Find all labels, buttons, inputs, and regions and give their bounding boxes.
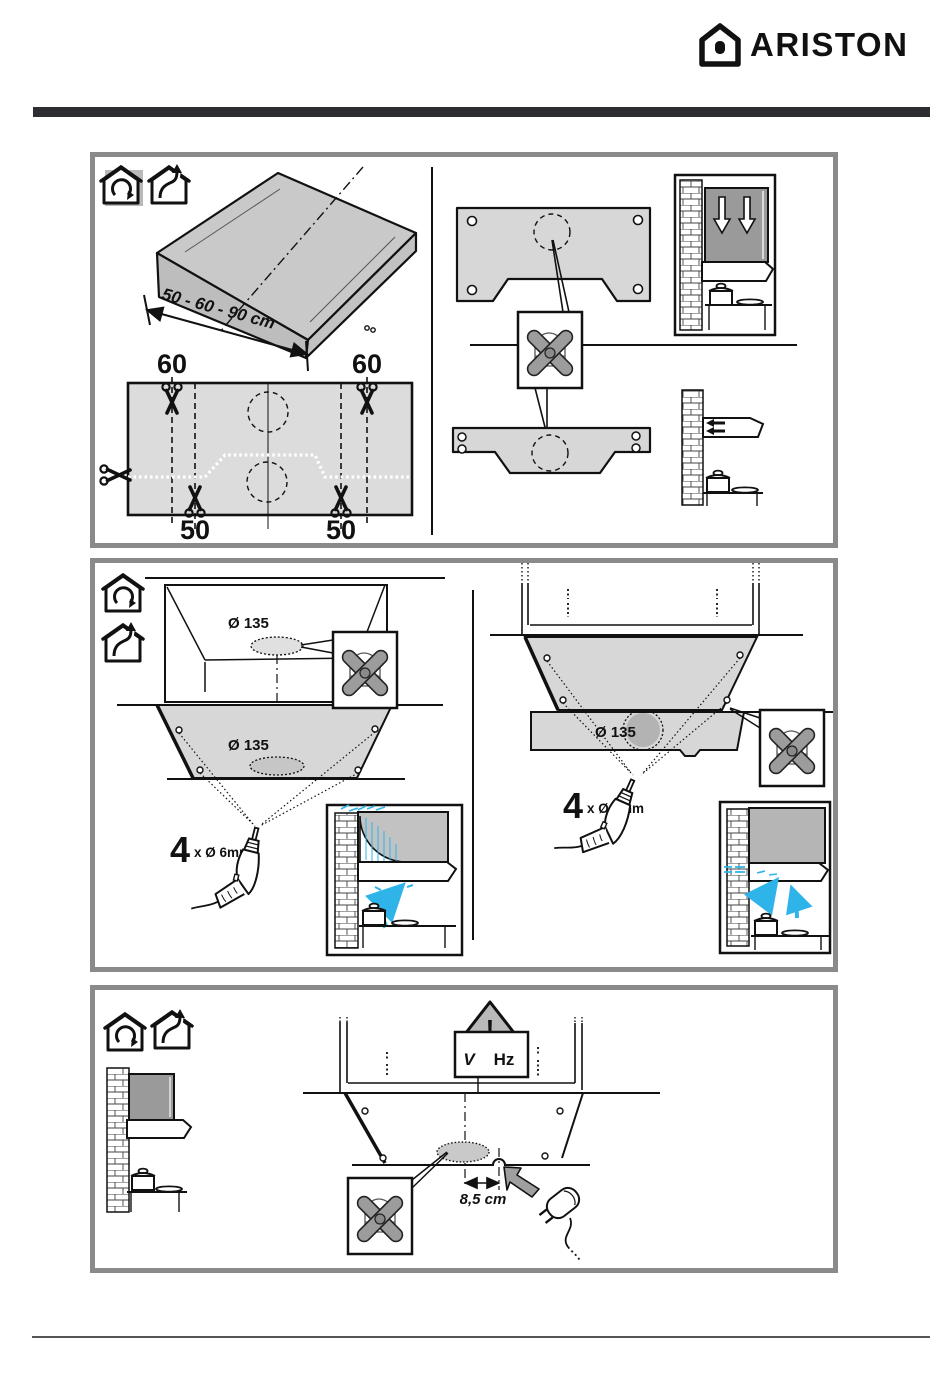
recirculation-mode-icon [101,167,143,206]
brick-wall [680,180,702,330]
brand-name: ARISTON [750,26,908,64]
pot-icon [706,471,730,492]
hole-diameter-label: Ø 135 [228,737,269,754]
hole-diameter-label: Ø 135 [595,724,636,741]
drill-count: 4 [170,829,190,870]
pot-icon [131,1169,155,1190]
plate-icon [732,487,758,492]
recirculation-mode-icon [105,1014,145,1050]
scene-duct-through-cabinet [327,805,462,955]
hood [358,862,456,881]
plate-icon [156,1186,182,1191]
drill-count: 4 [563,785,583,826]
drill-icon [191,817,268,922]
cabinet [705,188,768,262]
ariston-logo: ARISTON [698,22,916,68]
cable-knockout [437,1142,489,1162]
cut-60-left-label: 60 [157,349,187,379]
panel-electrical: ! V Hz 8,5 cm [90,985,838,1273]
ducted-mode-icon [103,622,143,661]
cable-distance-label: 8,5 cm [460,1191,507,1208]
hole-diameter-label: Ø 135 [228,615,269,632]
cut-50-left-label: 50 [180,515,210,543]
hood [702,262,773,281]
header-rule [33,107,930,117]
do-not-drill-icon [333,632,397,708]
cutting-template: 60 60 50 50 [100,349,412,543]
do-not-drill-icon [348,1178,412,1254]
ceiling-template [457,208,650,312]
panel-drilling: Ø 135 Ø 135 4 x Ø 6mm [90,558,838,972]
cabinet [749,808,825,863]
do-not-drill-icon [518,312,582,388]
hood [127,1120,191,1138]
brick-wall [107,1068,129,1212]
ariston-house-icon [698,23,742,67]
footer-rule [32,1336,930,1338]
cut-60-right-label: 60 [352,349,382,379]
insert-arrow-icon [504,1167,539,1197]
brick-wall [682,390,703,505]
power-plug-icon [504,1167,583,1261]
scene-under-cabinet [675,175,775,335]
recirculation-mode-icon [103,575,143,611]
plate-icon [392,920,418,925]
frequency-label: Hz [494,1050,515,1069]
cabinet [129,1074,174,1120]
plate-icon [782,930,808,935]
voltage-label: V [463,1050,476,1069]
scissors-icon [100,465,130,484]
do-not-drill-icon [760,710,824,786]
scene-on-wall [682,390,763,506]
plate-icon [737,299,763,304]
ducted-mode-icon [152,1009,192,1048]
instruction-page: { "header": { "brand": "ARISTON" }, "pan… [0,0,950,1379]
wall-template [453,428,650,473]
brick-wall [335,813,358,948]
duct-hole [251,637,303,655]
hood-3d-drawing [157,167,416,358]
brick-wall [727,809,749,946]
scene-installed-hood [107,1068,191,1212]
duct-hole [250,757,304,775]
ducted-mode-icon [149,164,189,203]
panel-template-cutting: 50 - 60 - 90 cm 60 60 50 50 [90,152,838,548]
cut-50-right-label: 50 [326,515,356,543]
scene-exhaust-through-wall [720,802,830,953]
mains-rating-warning: ! V Hz [455,1002,528,1092]
